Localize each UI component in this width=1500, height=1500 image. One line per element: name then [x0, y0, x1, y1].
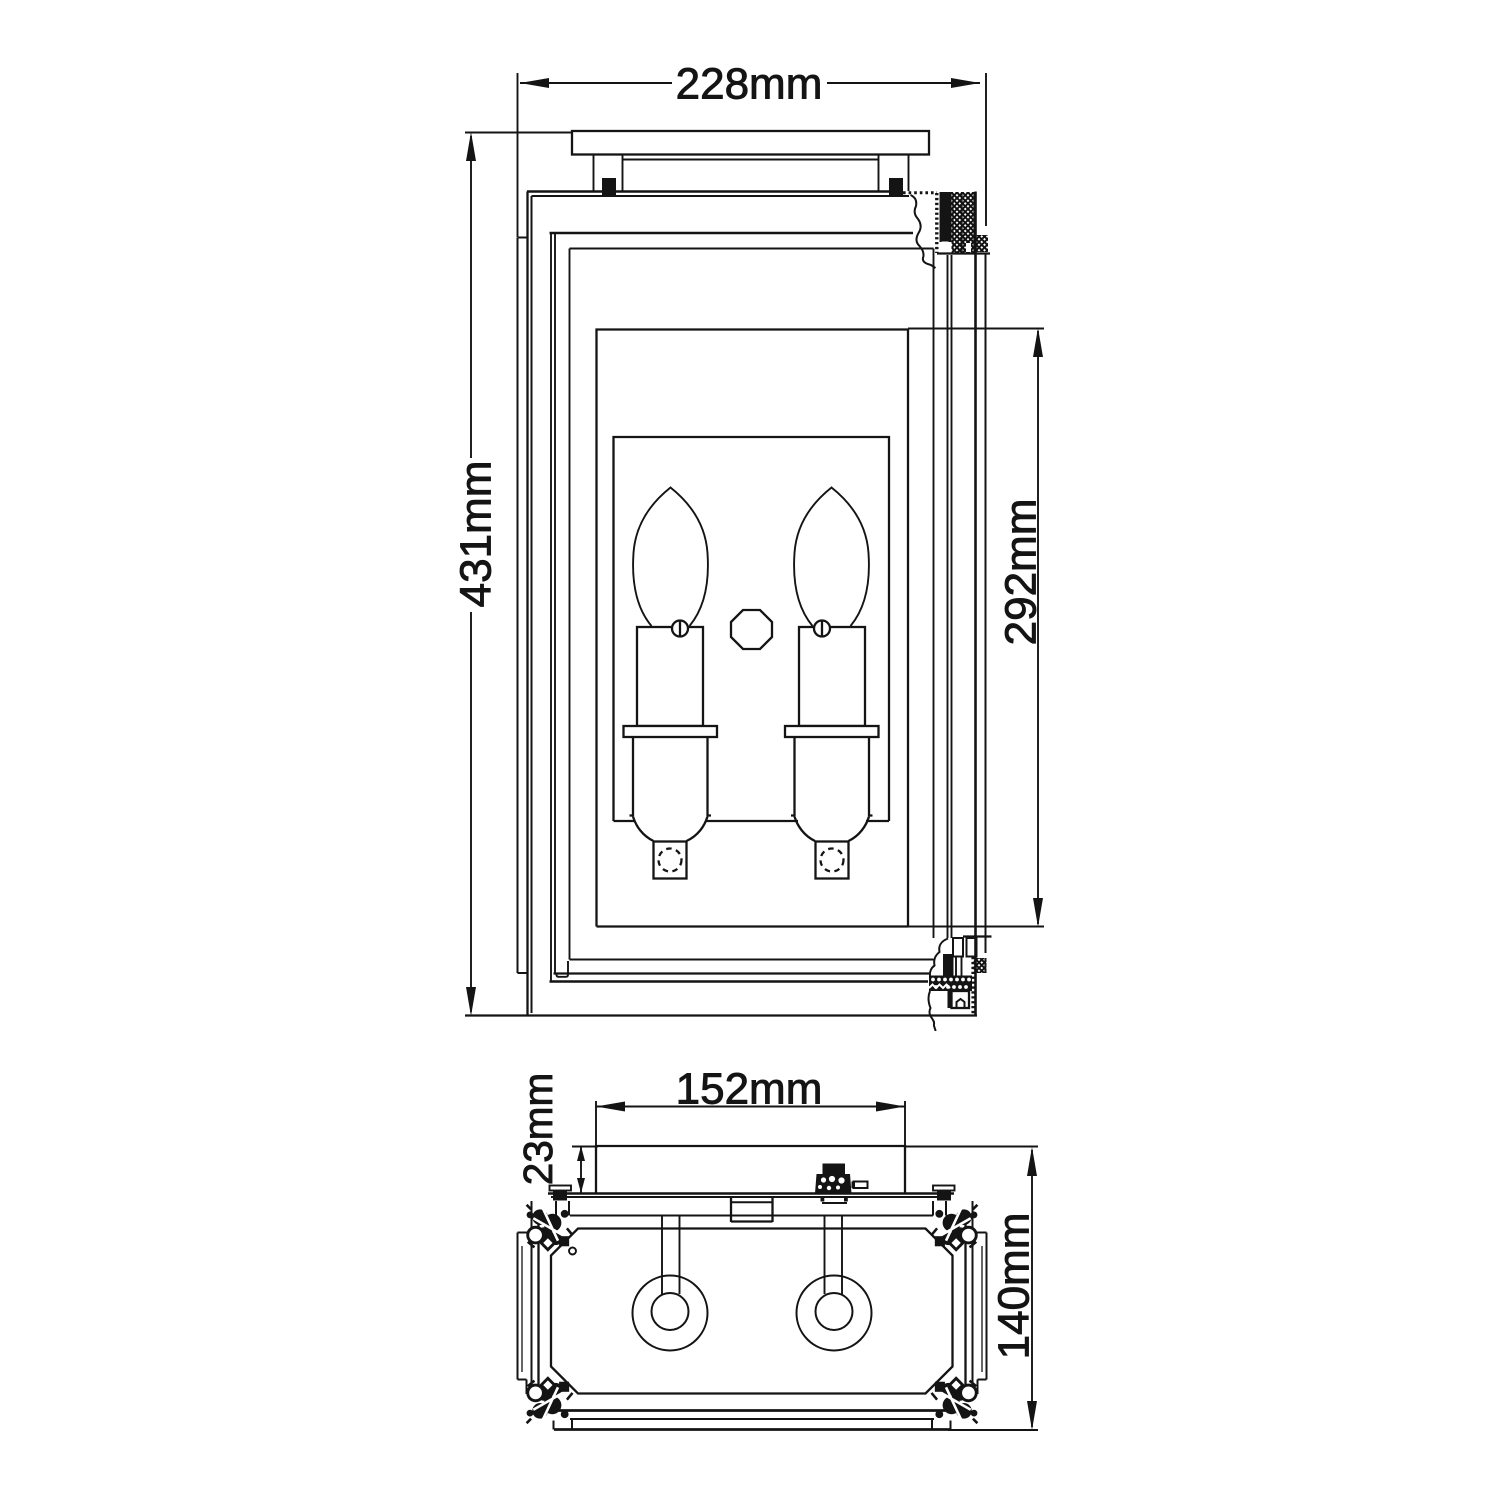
svg-text:431mm: 431mm: [452, 461, 501, 608]
svg-text:23mm: 23mm: [515, 1073, 561, 1186]
svg-text:228mm: 228mm: [676, 60, 823, 109]
